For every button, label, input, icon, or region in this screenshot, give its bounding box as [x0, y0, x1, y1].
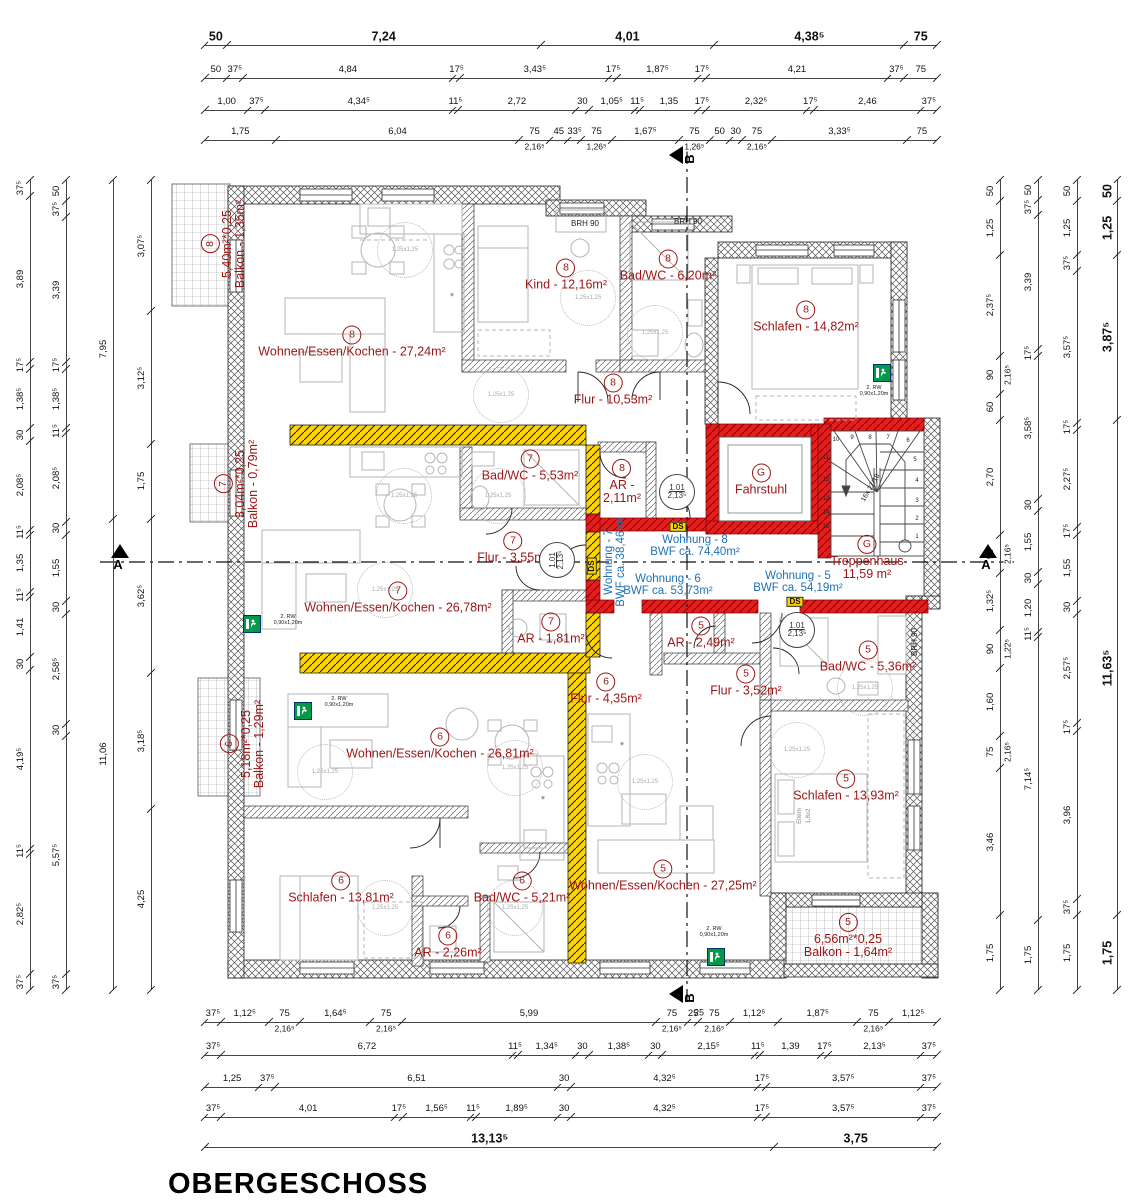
dim-line: [205, 1022, 937, 1023]
dim-label: 3,58⁵: [1024, 415, 1034, 439]
dim-sublabel: 2,16⁵: [375, 1025, 397, 1034]
apartment-area-label: Wohnung - 5BWF ca. 54,19m²: [753, 570, 842, 594]
dim-line: [1077, 180, 1078, 990]
dim-label: 30: [16, 657, 26, 670]
dim-label: 2,46: [857, 97, 878, 107]
annotation: Eltern: [797, 808, 803, 824]
apartment-number-circle: 8: [604, 373, 623, 392]
dim-label: 50: [52, 184, 62, 197]
dim-sublabel: 2,16⁵: [1004, 741, 1013, 763]
annotation: 4: [915, 478, 918, 484]
annotation: 15: [823, 524, 830, 530]
dim-label: 3,57⁵: [1063, 334, 1073, 358]
section-marker-arrow: [669, 146, 683, 164]
exit-sign-label: 2. RW0,90x1,20m: [325, 697, 354, 709]
dim-label: 1,34⁵: [535, 1042, 559, 1052]
dim-line: [205, 140, 937, 141]
dim-label: 1,55: [1063, 557, 1073, 578]
dim-label: 75: [528, 127, 541, 137]
dim-sublabel: 1,26⁵: [585, 143, 607, 152]
dim-label: 75: [867, 1009, 880, 1019]
dim-label: 30: [1063, 601, 1073, 614]
annotation: 16x 27/18: [860, 473, 882, 503]
dim-label: 2,32⁵: [744, 97, 768, 107]
dim-label: 1,38⁵: [607, 1042, 631, 1052]
room-label: 8AR -2,11m²: [603, 459, 641, 505]
ds-marker: DS: [587, 557, 597, 574]
apartment-number-circle: 5: [653, 859, 672, 878]
dim-line: [66, 180, 67, 990]
dim-label: 1,25: [986, 218, 996, 239]
apartment-number-circle: 5: [838, 913, 857, 932]
dim-label: 1,56⁵: [424, 1104, 448, 1114]
apartment-number-circle: 5: [836, 769, 855, 788]
door-tag-text: 2,13⁵: [660, 492, 694, 500]
dim-label: 1,55: [52, 557, 62, 578]
dim-label: 2,70: [986, 467, 996, 488]
dim-label: 3,39: [1024, 272, 1034, 293]
annotation: 7: [886, 435, 889, 441]
dim-label: 4,38⁵: [793, 30, 825, 43]
room-label-text: Wohnen/Essen/Kochen - 27,24m²: [258, 345, 445, 358]
exit-sign-label: 2. RW0,90x1,20m: [700, 927, 729, 939]
apartment-number-circle: 6: [438, 926, 457, 945]
room-label: 8Wohnen/Essen/Kochen - 27,24m²: [258, 325, 445, 358]
annotation: *: [620, 741, 624, 753]
apartment-area-text: Wohnung - 5: [753, 570, 842, 582]
dim-label: 3,46: [986, 831, 996, 852]
dim-line: [113, 180, 114, 990]
running-man-icon: [876, 367, 888, 379]
dim-line: [1038, 180, 1039, 990]
dim-label: 3,07⁵: [137, 233, 147, 257]
dim-label: 3,96: [1063, 805, 1073, 826]
room-label-text: Balkon - 1,29m²: [253, 700, 266, 788]
dim-label: 50: [986, 184, 996, 197]
room-label-text: Balkon - 0,79m²: [247, 440, 260, 528]
exit-sign-label: 2. RW0,90x1,20m: [274, 615, 303, 627]
section-marker-arrow: [111, 544, 129, 558]
annotation: 10: [833, 437, 840, 443]
dim-label: 75: [751, 127, 764, 137]
dim-label: 30: [729, 127, 742, 137]
apartment-number-circle: 8: [201, 235, 220, 254]
dim-label: 1,75: [1024, 945, 1034, 966]
dim-label: 2,15⁵: [696, 1042, 720, 1052]
annotation: 6: [906, 438, 909, 444]
turning-circle: 1,25x1,25: [376, 468, 432, 524]
annotation: 1,8x2: [806, 809, 812, 824]
dim-line: [205, 45, 937, 46]
dim-label: 37⁵: [16, 974, 26, 991]
dim-label: 37⁵: [1063, 254, 1073, 271]
room-label-text: Schlafen - 13,93m²: [793, 789, 899, 802]
dim-label: 1,05⁵: [600, 97, 624, 107]
annotation: BRH 90: [571, 220, 599, 228]
dim-label: 75: [986, 746, 996, 759]
annotation: 13: [823, 496, 830, 502]
dim-label: 30: [52, 522, 62, 535]
turning-circle: 1,25x1,25: [837, 660, 893, 716]
exit-sign-text: 0,90x1,20m: [700, 933, 729, 939]
dim-label: 30: [1024, 572, 1034, 585]
plan-title: OBERGESCHOSS: [168, 1168, 428, 1200]
room-label: 85,40m²*0,25Balkon - 1,35m²: [201, 200, 247, 288]
room-label: 8Bad/WC - 6,20m²: [620, 249, 717, 282]
dim-label: 4,19⁵: [16, 747, 26, 771]
room-label-text: Flur - 10,53m²: [574, 393, 653, 406]
apartment-number-circle: 5: [736, 664, 755, 683]
apartment-number-circle: 8: [659, 249, 678, 268]
dim-label: 75: [916, 127, 929, 137]
apartment-number-circle: G: [751, 463, 770, 482]
dim-label: 30: [52, 724, 62, 737]
exit-sign-label: 2. RW0,90x1,20m: [860, 386, 889, 398]
dim-line: [205, 1147, 937, 1148]
apartment-area-text: Wohnung - 8: [650, 534, 739, 546]
room-label-text: Flur - 4,35m²: [570, 692, 642, 705]
room-label-text: Wohnen/Essen/Kochen - 27,25m²: [569, 879, 756, 892]
room-label: 6Flur - 4,35m²: [570, 672, 642, 705]
dim-label: 4,01: [298, 1104, 319, 1114]
dim-label: 2,82⁵: [16, 902, 26, 926]
apartment-number-circle: 8: [612, 459, 631, 478]
room-label-text: Balkon - 1,35m²: [234, 200, 247, 288]
dim-label: 3,12⁵: [137, 365, 147, 389]
room-label: 8Schlafen - 14,82m²: [753, 300, 859, 333]
dim-sublabel: 2,16⁵: [524, 143, 546, 152]
dim-label: 2,57⁵: [1063, 656, 1073, 680]
dim-label: 1,25: [1101, 215, 1114, 241]
dim-label: 2,27⁵: [1063, 467, 1073, 491]
dim-label: 1,87⁵: [806, 1009, 830, 1019]
dim-label: 2,13⁵: [862, 1042, 886, 1052]
dim-label: 30: [558, 1104, 571, 1114]
emergency-exit-icon: [873, 364, 891, 382]
apartment-area-text: BWF ca. 54,19m²: [753, 582, 842, 594]
dim-label: 37⁵: [888, 65, 905, 75]
exit-sign-text: 0,90x1,20m: [274, 621, 303, 627]
room-label-text: 2,11m²: [603, 492, 641, 505]
apartment-number-circle: 8: [342, 325, 361, 344]
door-tag: 1.012,13⁵: [779, 612, 815, 648]
dim-label: 37⁵: [921, 1104, 938, 1114]
room-label-text: Flur - 3,52m²: [710, 684, 782, 697]
apartment-number-circle: 7: [521, 449, 540, 468]
annotation: BRH 90: [911, 628, 919, 656]
dim-label: 75: [278, 1009, 291, 1019]
dim-label: 75: [666, 1009, 679, 1019]
apartment-number-circle: 7: [541, 612, 560, 631]
ds-marker: DS: [786, 597, 803, 607]
dim-line: [1000, 180, 1001, 990]
apartment-number-circle: 6: [220, 735, 239, 754]
dim-label: 1,64⁵: [323, 1009, 347, 1019]
dim-label: 37⁵: [921, 1074, 938, 1084]
dim-line: [30, 180, 31, 990]
turning-circle: 1,25x1,25: [473, 367, 529, 423]
dim-label: 4,01: [614, 30, 640, 43]
dim-label: 75: [590, 127, 603, 137]
section-marker-arrow: [669, 985, 683, 1003]
annotation: 5: [913, 457, 916, 463]
door-tag-text: 2,13⁵: [557, 543, 565, 577]
room-label-text: Fahrstuhl: [735, 483, 787, 496]
dim-label: 30: [16, 428, 26, 441]
dim-label: 37⁵: [248, 97, 265, 107]
turning-circle: 1,25x1,25: [297, 744, 353, 800]
dim-label: 75: [708, 1009, 721, 1019]
dim-label: 1,25: [222, 1074, 243, 1084]
apartment-area-label: Wohnung - 8BWF ca. 74,40m²: [650, 534, 739, 558]
dim-label: 37⁵: [52, 974, 62, 991]
dim-label: 4,34⁵: [347, 97, 371, 107]
turning-circle: 1,25x1,25: [357, 880, 413, 936]
room-label: 6AR - 2,26m²: [414, 926, 481, 959]
dim-label: 30: [576, 1042, 589, 1052]
dim-label: 1,35: [659, 97, 680, 107]
dim-label: 1,75: [137, 471, 147, 492]
dim-label: 1,75: [1101, 940, 1114, 966]
dim-label: 5,57⁵: [52, 843, 62, 867]
turning-circle: 1,25x1,25: [617, 754, 673, 810]
dim-label: 7,14⁵: [1024, 766, 1034, 790]
apartment-number-circle: 6: [430, 727, 449, 746]
dim-label: 3,62⁵: [137, 584, 147, 608]
dim-sublabel: 2,16⁵: [1004, 364, 1013, 386]
annotation: *: [450, 292, 454, 304]
dim-label: 37⁵: [205, 1042, 222, 1052]
annotation: 2: [915, 516, 918, 522]
dim-label: 5,99: [519, 1009, 540, 1019]
dim-label: 37⁵: [52, 201, 62, 218]
dim-label: 1,25: [1063, 218, 1073, 239]
dim-label: 1,39: [780, 1042, 801, 1052]
dim-label: 7,95: [99, 339, 109, 360]
dim-label: 37⁵: [205, 1104, 222, 1114]
dim-label: 1,55: [1024, 531, 1034, 552]
dim-label: 2,72: [507, 97, 528, 107]
dim-label: 11,06: [99, 742, 109, 767]
dim-label: 1,75: [1063, 942, 1073, 963]
dim-label: 2,58⁵: [52, 656, 62, 680]
dim-label: 37⁵: [259, 1074, 276, 1084]
turning-circle: 1,25x1,25: [487, 880, 543, 936]
annotation: BRH 90: [674, 218, 702, 226]
dim-label: 3,18⁵: [137, 729, 147, 753]
dim-label: 1,75: [230, 127, 251, 137]
dim-label: 37⁵: [205, 1009, 222, 1019]
dim-label: 75: [688, 127, 701, 137]
dim-label: 6,04: [387, 127, 408, 137]
dim-label: 75: [913, 30, 929, 43]
dim-label: 3,57⁵: [831, 1074, 855, 1084]
dim-label: 11,63⁵: [1101, 648, 1114, 686]
section-marker-label: B: [683, 154, 697, 163]
dim-label: 1,67⁵: [633, 127, 657, 137]
dim-sublabel: 1,22⁵: [1004, 638, 1013, 660]
dim-label: 1,12⁵: [901, 1009, 925, 1019]
dim-label: 4,84: [338, 65, 359, 75]
dim-label: 30: [52, 601, 62, 614]
dim-label: 90: [986, 369, 996, 382]
dim-line: [1117, 180, 1118, 990]
annotation: 14: [823, 510, 830, 516]
turning-circle: 1,25x1,25: [560, 270, 616, 326]
dim-label: 3,87⁵: [1101, 321, 1114, 353]
annotation: 12: [823, 477, 830, 483]
apartment-area-label: Wohnung - 6BWF ca. 53,73m²: [623, 573, 712, 597]
running-man-icon: [297, 705, 309, 717]
turning-circle: 1,25x1,25: [487, 740, 543, 796]
dim-label: 75: [380, 1009, 393, 1019]
dim-label: 30: [576, 97, 589, 107]
dim-line: [151, 180, 152, 990]
annotation: 25: [694, 1008, 704, 1017]
dim-label: 45: [552, 127, 565, 137]
dim-label: 4,32⁵: [652, 1074, 676, 1084]
annotation: 9: [850, 435, 853, 441]
floorplan-sheet: 507,244,014,38⁵755037⁵4,8417⁵3,43⁵17⁵1,8…: [0, 0, 1139, 1200]
door-tag: 1.012,13⁵: [539, 542, 575, 578]
room-label: 8Flur - 10,53m²: [574, 373, 653, 406]
dim-label: 3,75: [843, 1132, 869, 1145]
turning-circle: 1,25x1,25: [470, 468, 526, 524]
dim-label: 90: [986, 642, 996, 655]
dim-label: 1,12⁵: [233, 1009, 257, 1019]
room-label: 56,56m²*0,25Balkon - 1,64m²: [804, 913, 892, 959]
dim-label: 6,72: [357, 1042, 378, 1052]
dim-sublabel: 2,16⁵: [746, 143, 768, 152]
dim-line: [205, 110, 937, 111]
ds-marker: DS: [669, 522, 686, 532]
label-overlay: 507,244,014,38⁵755037⁵4,8417⁵3,43⁵17⁵1,8…: [0, 0, 1139, 1200]
section-marker-label: A: [981, 558, 990, 572]
apartment-area-text: BWF ca. 53,73m²: [623, 585, 712, 597]
dim-label: 13,13⁵: [470, 1132, 509, 1145]
dim-label: 37⁵: [921, 1042, 938, 1052]
dim-label: 37⁵: [227, 65, 244, 75]
turning-circle: 1,25x1,25: [377, 222, 433, 278]
dim-sublabel: 2,16⁵: [273, 1025, 295, 1034]
annotation: 8: [868, 435, 871, 441]
dim-label: 3,39: [52, 279, 62, 300]
dim-label: 4,25: [137, 889, 147, 910]
dim-label: 30: [1024, 499, 1034, 512]
dim-label: 17⁵: [1063, 418, 1073, 435]
dim-line: [205, 78, 937, 79]
dim-label: 1,41: [16, 617, 26, 638]
dim-label: 1,00: [216, 97, 237, 107]
dim-label: 1,12⁵: [742, 1009, 766, 1019]
room-label-text: Bad/WC - 6,20m²: [620, 269, 717, 282]
dim-label: 60: [986, 401, 996, 414]
dim-label: 37⁵: [16, 180, 26, 197]
apartment-number-circle: 7: [214, 475, 233, 494]
dim-label: 17⁵: [1063, 523, 1073, 540]
dim-label: 30: [558, 1074, 571, 1084]
dim-label: 2,08⁵: [16, 473, 26, 497]
dim-label: 17⁵: [1063, 719, 1073, 736]
room-label: GFahrstuhl: [735, 463, 787, 496]
dim-label: 37⁵: [1063, 899, 1073, 916]
emergency-exit-icon: [243, 615, 261, 633]
annotation: 11: [823, 455, 829, 461]
room-label: 5Wohnen/Essen/Kochen - 27,25m²: [569, 859, 756, 892]
exit-sign-text: 0,90x1,20m: [860, 392, 889, 398]
running-man-icon: [246, 618, 258, 630]
turning-circle: 1,25x1,25: [769, 722, 825, 778]
annotation: *: [541, 795, 545, 807]
room-label-text: AR - 1,81m²: [517, 632, 584, 645]
apartment-number-circle: 8: [796, 300, 815, 319]
room-label-text: Balkon - 1,64m²: [804, 946, 892, 959]
emergency-exit-icon: [294, 702, 312, 720]
dim-label: 4,32⁵: [652, 1104, 676, 1114]
running-man-icon: [710, 951, 722, 963]
dim-label: 2,37⁵: [986, 293, 996, 317]
dim-label: 1,60: [986, 692, 996, 713]
turning-circle: 1,25x1,25: [627, 305, 683, 361]
section-marker-label: A: [113, 558, 122, 572]
apartment-number-circle: G: [857, 535, 876, 554]
dim-label: 4,21: [787, 65, 808, 75]
dim-label: 50: [1024, 184, 1034, 197]
dim-label: 3,57⁵: [831, 1104, 855, 1114]
dim-label: 3,43⁵: [523, 65, 547, 75]
dim-label: 3,89: [16, 269, 26, 290]
apartment-area-text: Wohnung - 7: [603, 517, 615, 606]
dim-label: 30: [649, 1042, 662, 1052]
apartment-number-circle: 6: [596, 672, 615, 691]
dim-sublabel: 2,16⁵: [1004, 543, 1013, 565]
room-label-text: Schlafen - 14,82m²: [753, 320, 859, 333]
apartment-number-circle: 6: [331, 871, 350, 890]
dim-label: 1,75: [986, 942, 996, 963]
dim-sublabel: 2,16⁵: [703, 1025, 725, 1034]
dim-label: 50: [1063, 184, 1073, 197]
room-label: 73,04m²*0,25Balkon - 0,79m²: [214, 440, 260, 528]
dim-label: 1,87⁵: [645, 65, 669, 75]
room-label: 7AR - 1,81m²: [517, 612, 584, 645]
apartment-area-text: BWF ca. 74,40m²: [650, 546, 739, 558]
turning-circle: 1,25x1,25: [357, 562, 413, 618]
dim-label: 50: [210, 65, 223, 75]
dim-label: 33⁵: [566, 127, 583, 137]
dim-sublabel: 1,26⁵: [683, 143, 705, 152]
dim-label: 37⁵: [1024, 199, 1034, 216]
apartment-number-circle: 5: [691, 616, 710, 635]
dim-label: 1,20: [1024, 598, 1034, 619]
annotation: 3: [915, 498, 918, 504]
section-marker-label: B: [683, 993, 697, 1002]
room-label-text: AR - 2,26m²: [414, 946, 481, 959]
dim-label: 75: [914, 65, 927, 75]
dim-label: 1,38⁵: [16, 386, 26, 410]
room-label-text: AR - 2,49m²: [667, 636, 734, 649]
dim-label: 50: [713, 127, 726, 137]
room-label: 5AR - 2,49m²: [667, 616, 734, 649]
dim-label: 1,35: [16, 553, 26, 574]
dim-label: 1,32⁵: [986, 589, 996, 613]
dim-label: 17⁵: [16, 357, 26, 374]
dim-label: 17⁵: [52, 357, 62, 374]
emergency-exit-icon: [707, 948, 725, 966]
door-tag: 1.012,13⁵: [659, 474, 695, 510]
dim-label: 3,33⁵: [827, 127, 851, 137]
exit-sign-text: 0,90x1,20m: [325, 703, 354, 709]
section-marker-arrow: [979, 544, 997, 558]
